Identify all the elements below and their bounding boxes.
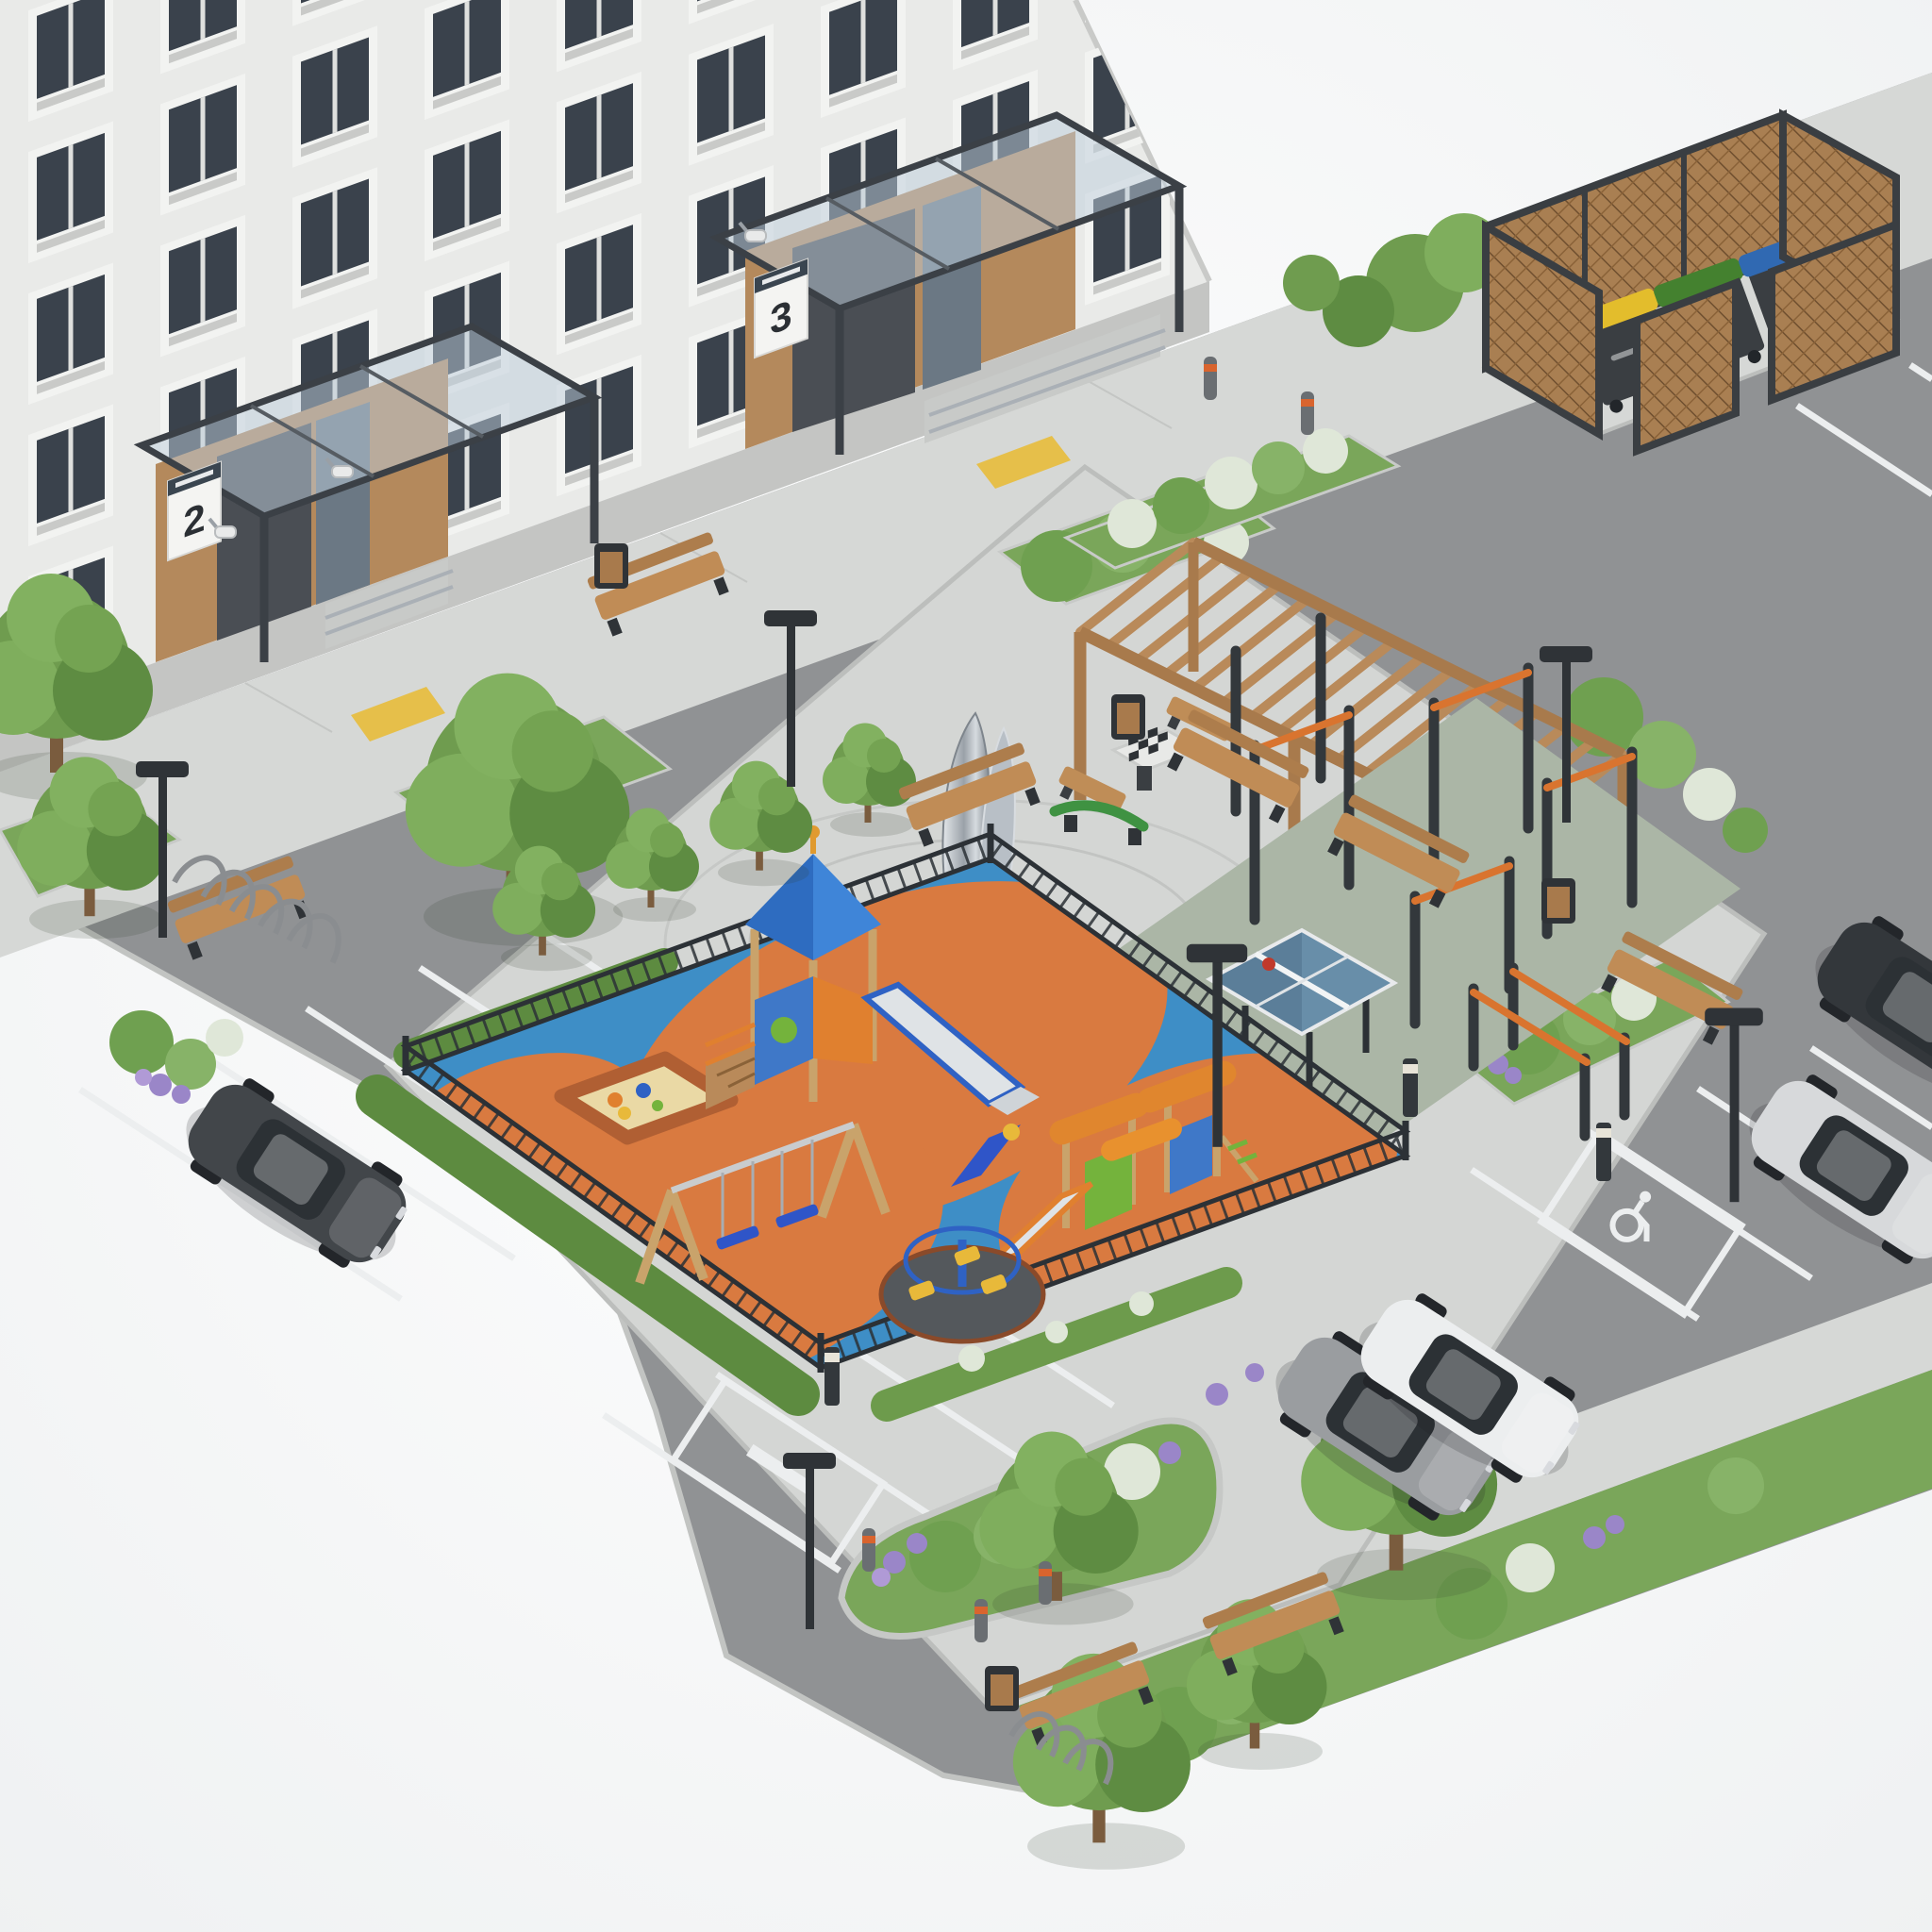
- entrance-2-number: 2: [183, 495, 205, 547]
- entrance-3-number: 3: [770, 292, 791, 344]
- paddle: [1262, 958, 1275, 971]
- tower-porthole: [771, 1017, 797, 1043]
- courtyard-render: 2 3: [0, 0, 1932, 1932]
- screenshot-canvas: 2 3: [0, 0, 1932, 1932]
